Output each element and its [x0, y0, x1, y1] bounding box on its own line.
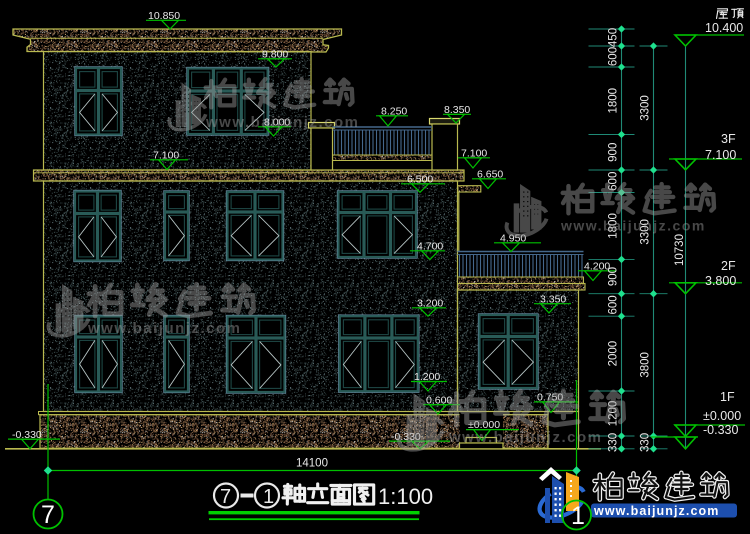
svg-text:10.400: 10.400: [705, 21, 743, 35]
svg-text:900: 900: [608, 267, 620, 286]
svg-text:www.baijunjz.com: www.baijunjz.com: [205, 114, 359, 131]
svg-text:1800: 1800: [608, 88, 620, 114]
svg-text:3.800: 3.800: [705, 274, 736, 288]
svg-text:3800: 3800: [640, 352, 652, 378]
svg-text:900: 900: [608, 143, 620, 162]
svg-text:1:100: 1:100: [378, 484, 433, 509]
svg-text:www.baijunjz.com: www.baijunjz.com: [560, 218, 706, 234]
svg-text:7.100: 7.100: [705, 148, 736, 162]
svg-text:±0.000: ±0.000: [703, 409, 741, 423]
svg-text:3F: 3F: [721, 132, 736, 146]
svg-text:7: 7: [220, 486, 231, 508]
svg-text:450: 450: [608, 28, 620, 47]
svg-text:2F: 2F: [721, 259, 736, 273]
svg-text:www.baijunjz.com: www.baijunjz.com: [593, 504, 719, 518]
svg-text:7: 7: [41, 501, 55, 529]
svg-text:-0.330: -0.330: [703, 423, 738, 437]
svg-text:www.baijunjz.com: www.baijunjz.com: [87, 320, 241, 337]
svg-text:14100: 14100: [296, 458, 328, 470]
svg-text:1F: 1F: [720, 390, 735, 404]
svg-text:330: 330: [640, 433, 652, 452]
svg-text:330: 330: [608, 433, 620, 452]
svg-text:600: 600: [608, 47, 620, 66]
svg-text:600: 600: [608, 295, 620, 314]
svg-text:1: 1: [571, 502, 585, 530]
svg-text:10730: 10730: [674, 234, 686, 266]
svg-text:www.baijunjz.com: www.baijunjz.com: [448, 429, 602, 446]
svg-text:1: 1: [263, 486, 274, 508]
svg-text:3300: 3300: [640, 95, 652, 121]
svg-text:2000: 2000: [608, 341, 620, 367]
